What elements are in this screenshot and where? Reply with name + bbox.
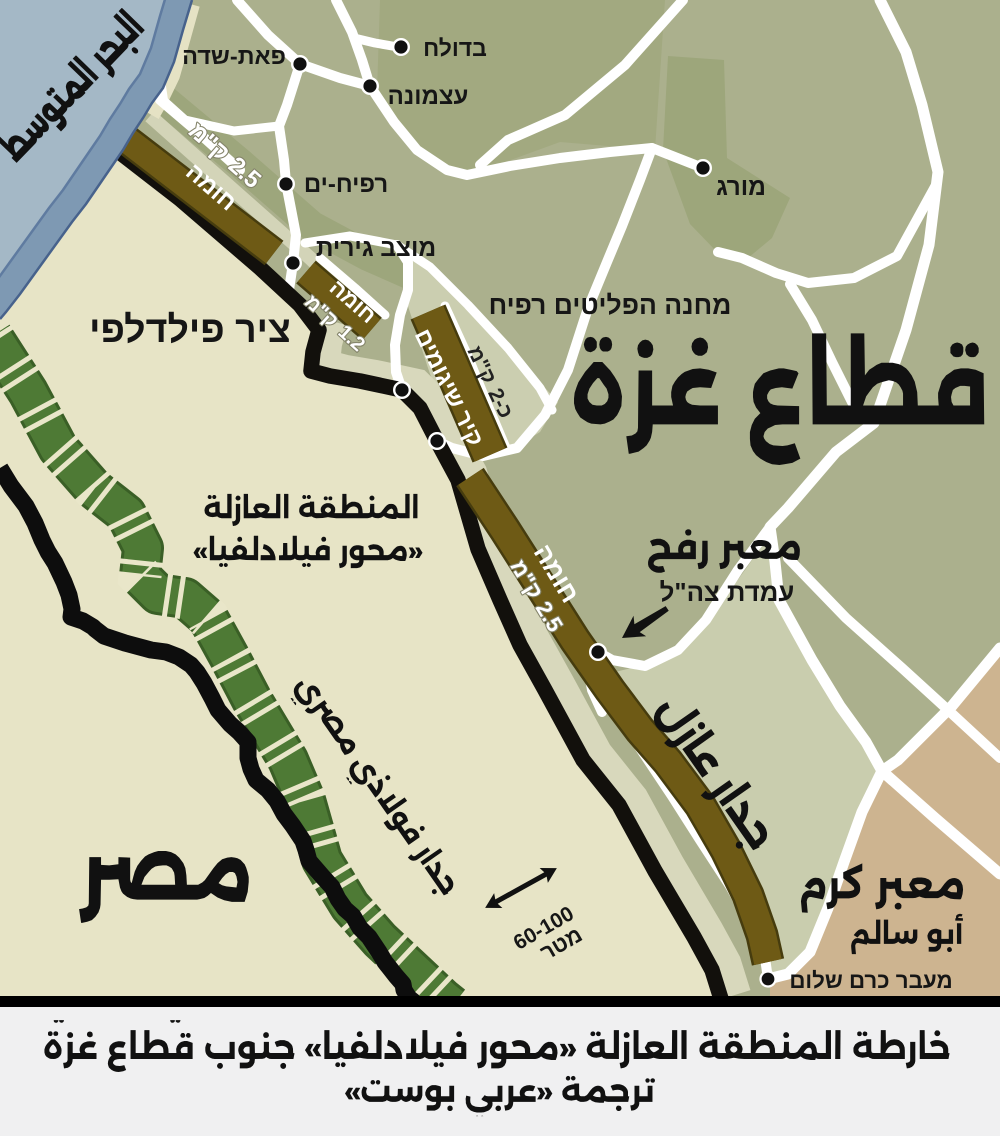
svg-text:מעבר כרם שלום: מעבר כרם שלום — [789, 968, 952, 993]
svg-text:עמדת צה"ל: עמדת צה"ל — [660, 579, 795, 607]
svg-text:עצמונה: עצמונה — [388, 83, 469, 110]
svg-text:ציר פילדלפי: ציר פילדלפי — [89, 308, 291, 350]
svg-text:מוצב גירית: מוצב גירית — [316, 235, 436, 262]
svg-text:פאת-שדה: פאת-שדה — [182, 43, 286, 69]
svg-text:מחנה הפליטים רפיח: מחנה הפליטים רפיח — [489, 290, 732, 320]
svg-text:בדולח: בדולח — [423, 35, 487, 61]
svg-text:רפיח-ים: רפיח-ים — [304, 171, 388, 198]
svg-text:מורג: מורג — [716, 174, 766, 201]
